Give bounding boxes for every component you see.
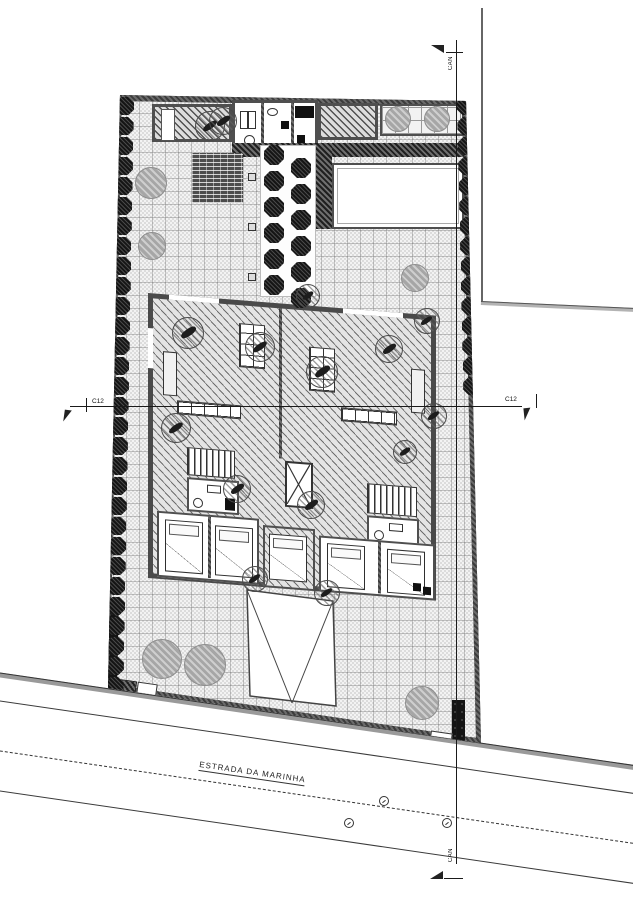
boundary-tree-icon	[115, 137, 133, 155]
hatched-tree-icon	[223, 475, 251, 503]
gray-tree-icon	[135, 167, 167, 199]
boundary-tree-icon	[459, 177, 477, 195]
section-flag-icon	[63, 410, 72, 423]
pergola-tree-icon	[264, 223, 284, 243]
hatched-tree-icon	[161, 413, 191, 443]
site-plan-drawing: ESTRADA DA MARINHA	[0, 0, 633, 897]
boundary-line-vertical	[481, 8, 483, 302]
hatched-tree-icon	[296, 284, 320, 308]
boundary-tree-icon	[109, 477, 127, 495]
gray-tree-icon	[184, 644, 226, 686]
hatched-tree-icon	[314, 580, 340, 606]
boundary-tree-icon	[113, 237, 131, 255]
vegetation-layer	[100, 88, 492, 750]
gray-tree-icon	[142, 639, 182, 679]
hatched-tree-icon	[306, 356, 338, 388]
boundary-tree-icon	[461, 277, 479, 295]
boundary-tree-icon	[106, 657, 124, 675]
gray-tree-icon	[405, 686, 439, 720]
boundary-tree-icon	[108, 537, 126, 555]
boundary-tree-icon	[458, 137, 476, 155]
boundary-tree-icon	[462, 337, 480, 355]
gray-tree-icon	[424, 106, 450, 132]
boundary-tree-icon	[113, 257, 131, 275]
pergola-tree-icon	[264, 145, 284, 165]
boundary-tree-icon	[113, 277, 131, 295]
manhole-icon	[442, 818, 452, 828]
pergola-tree-icon	[291, 158, 311, 178]
section-label-c12-west: C12	[92, 399, 104, 406]
section-flag-icon	[523, 408, 531, 421]
site-area	[100, 88, 492, 750]
boundary-tree-icon	[112, 337, 130, 355]
boundary-tree-icon	[115, 177, 133, 195]
boundary-tree-icon	[459, 197, 477, 215]
boundary-tree-icon	[461, 297, 479, 315]
boundary-tree-icon	[110, 417, 128, 435]
boundary-tree-icon	[114, 197, 132, 215]
section-line-can	[456, 40, 457, 864]
boundary-tree-icon	[457, 117, 475, 135]
boundary-tree-icon	[109, 497, 127, 515]
boundary-tree-icon	[115, 157, 133, 175]
pergola-tree-icon	[291, 262, 311, 282]
section-tick	[536, 394, 537, 408]
hatched-tree-icon	[245, 332, 275, 362]
hatched-tree-icon	[375, 335, 403, 363]
boundary-tree-icon	[107, 597, 125, 615]
boundary-tree-icon	[460, 237, 478, 255]
pergola-tree-icon	[264, 197, 284, 217]
boundary-line-horizontal	[481, 301, 633, 312]
boundary-tree-icon	[460, 217, 478, 235]
boundary-tree-icon	[463, 377, 481, 395]
pergola-tree-icon	[291, 184, 311, 204]
section-flag-icon	[431, 45, 444, 53]
gray-tree-icon	[385, 106, 411, 132]
boundary-tree-icon	[461, 257, 479, 275]
road-edge-line-south	[0, 789, 633, 891]
boundary-tree-icon	[114, 217, 132, 235]
boundary-tree-icon	[116, 117, 134, 135]
boundary-tree-icon	[116, 97, 134, 115]
pergola-tree-icon	[291, 236, 311, 256]
hatched-tree-icon	[172, 317, 204, 349]
section-label-can-north: CAN	[448, 56, 454, 70]
hatched-tree-icon	[414, 308, 440, 334]
boundary-tree-icon	[107, 577, 125, 595]
boundary-tree-icon	[112, 297, 130, 315]
boundary-tree-icon	[106, 637, 124, 655]
section-line-c12	[70, 406, 522, 407]
pergola-tree-icon	[264, 171, 284, 191]
gray-tree-icon	[401, 264, 429, 292]
gate-swing-icon	[427, 743, 455, 761]
boundary-tree-icon	[108, 517, 126, 535]
boundary-tree-icon	[110, 437, 128, 455]
boundary-tree-icon	[462, 317, 480, 335]
boundary-tree-icon	[107, 617, 125, 635]
section-tick	[86, 398, 87, 412]
section-flag-icon	[430, 871, 443, 879]
manhole-icon	[379, 796, 389, 806]
boundary-tree-icon	[112, 317, 130, 335]
manhole-icon	[344, 818, 354, 828]
boundary-tree-icon	[108, 557, 126, 575]
boundary-tree-icon	[111, 357, 129, 375]
boundary-tree-icon	[458, 157, 476, 175]
boundary-tree-icon	[111, 377, 129, 395]
pergola-tree-icon	[264, 275, 284, 295]
section-tick	[444, 878, 463, 879]
section-label-can-south: CAN	[448, 848, 454, 862]
boundary-tree-icon	[110, 457, 128, 475]
gray-tree-icon	[138, 232, 166, 260]
hatched-tree-icon	[393, 440, 417, 464]
hatched-tree-icon	[209, 107, 237, 135]
pergola-tree-icon	[264, 249, 284, 269]
hatched-tree-icon	[297, 491, 325, 519]
section-tick	[446, 52, 463, 53]
hatched-tree-icon	[242, 566, 268, 592]
boundary-tree-icon	[463, 357, 481, 375]
section-label-c12-east: C12	[505, 397, 517, 404]
boundary-tree-icon	[457, 97, 475, 115]
pergola-tree-icon	[291, 210, 311, 230]
